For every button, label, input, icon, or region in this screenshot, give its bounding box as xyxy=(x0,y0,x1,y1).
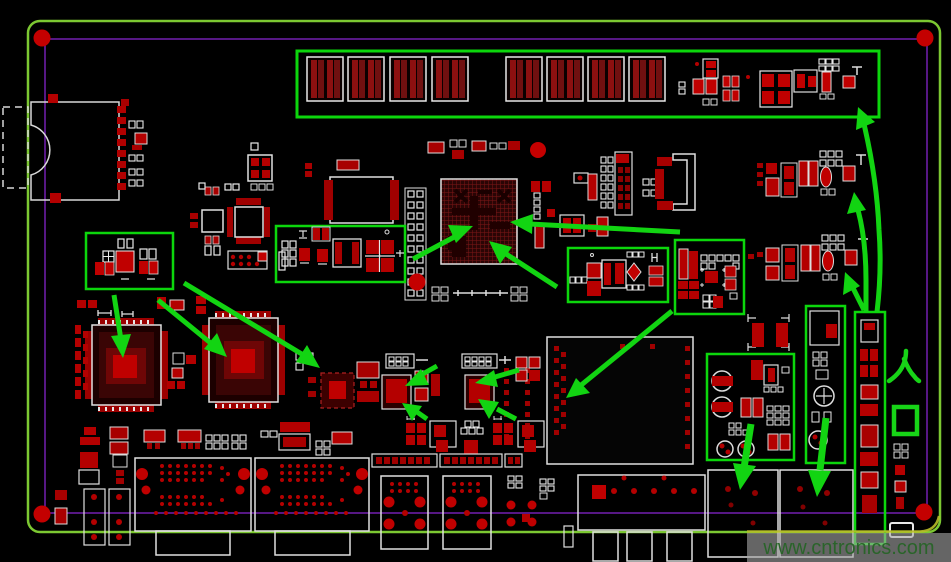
svg-text:www.cntronics.com: www.cntronics.com xyxy=(762,537,934,559)
